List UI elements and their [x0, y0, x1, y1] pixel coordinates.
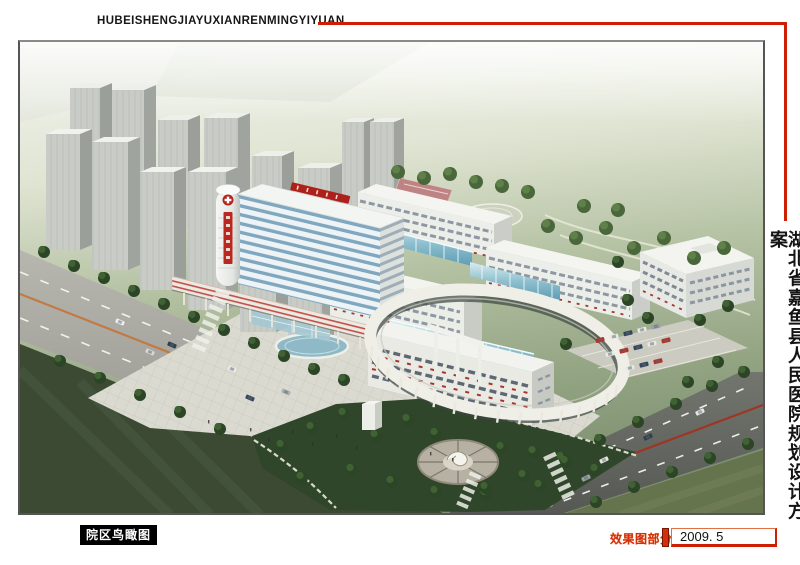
- date-box: 2009. 5: [671, 528, 777, 547]
- rendering-frame: [18, 40, 765, 515]
- vertical-sign: [224, 212, 233, 264]
- side-title-vertical: 湖北省嘉鱼县人民医院规划设计方案: [769, 230, 800, 522]
- circular-plaza: [418, 440, 498, 484]
- gate-booth: [362, 401, 382, 430]
- page-title: HUBEISHENGJIAYUXIANRENMINGYIYUAN: [97, 15, 345, 27]
- header-accent-line: [318, 22, 786, 25]
- corner-turret: [216, 185, 240, 287]
- aerial-rendering: [20, 42, 763, 513]
- date-value: 2009. 5: [680, 529, 723, 544]
- caption-badge: 院区鸟瞰图: [80, 525, 157, 545]
- side-accent-line: [784, 22, 787, 221]
- date-accent-bar: [662, 528, 669, 547]
- red-cross-icon: [223, 195, 234, 206]
